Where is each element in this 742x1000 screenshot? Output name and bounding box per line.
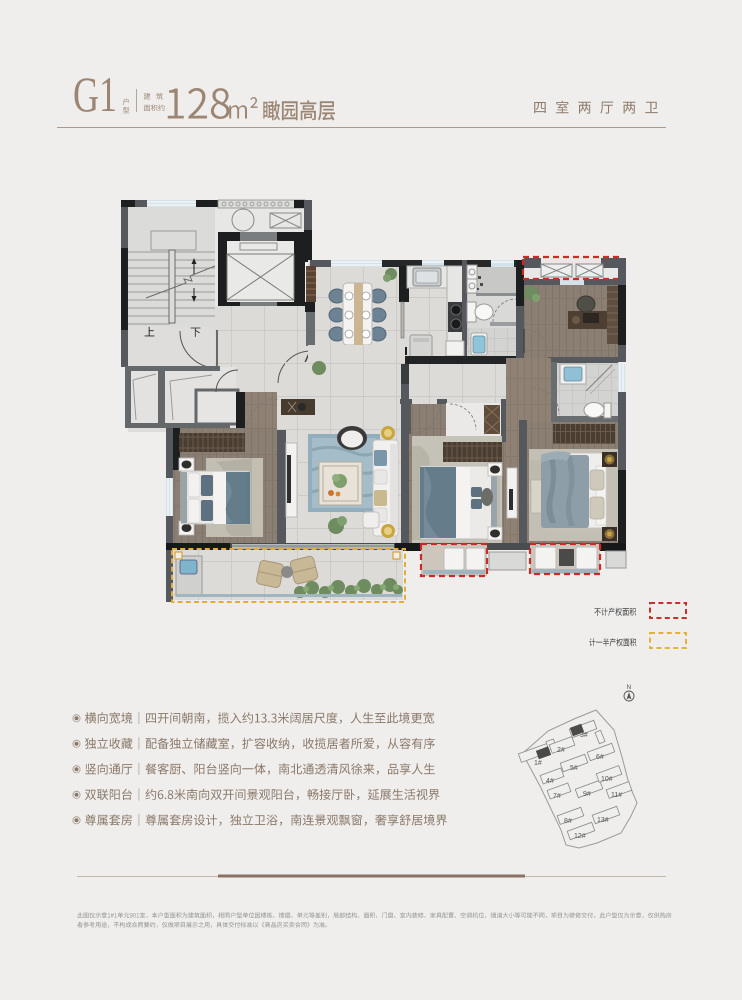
svg-text:10#: 10#: [601, 776, 613, 783]
svg-text:7#: 7#: [553, 793, 561, 800]
svg-text:4#: 4#: [546, 778, 554, 785]
svg-text:1#: 1#: [534, 760, 542, 767]
svg-text:9#: 9#: [583, 791, 591, 798]
svg-text:11#: 11#: [611, 792, 622, 799]
svg-text:12#: 12#: [574, 833, 586, 840]
svg-text:5#: 5#: [570, 765, 578, 772]
svg-text:8#: 8#: [564, 818, 572, 825]
svg-text:6#: 6#: [596, 754, 604, 761]
svg-text:N: N: [627, 684, 632, 691]
svg-text:2#: 2#: [557, 747, 565, 754]
svg-text:3#: 3#: [580, 732, 588, 739]
svg-text:13#: 13#: [597, 817, 609, 824]
